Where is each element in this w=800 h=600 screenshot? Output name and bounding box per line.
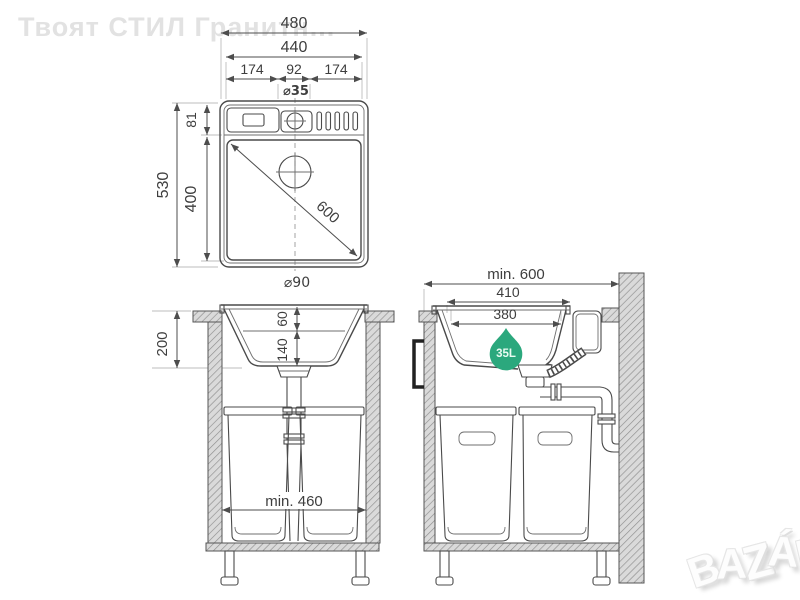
cabinet-wall-left	[208, 322, 222, 543]
front-dimensions: 200 60 140 min. 460	[154, 307, 366, 510]
side-view: 35L min. 600 410 380	[414, 266, 644, 585]
leg	[597, 551, 606, 577]
trap-cup	[526, 377, 544, 387]
dim-440: 440	[281, 39, 308, 56]
bin-handle	[459, 432, 495, 445]
waste-bin-front	[436, 407, 516, 541]
cabinet-base	[206, 543, 379, 585]
badge-capacity-label: 35L	[496, 348, 516, 360]
dim-81: 81	[183, 112, 199, 128]
dim-174-left: 174	[240, 61, 264, 77]
accessory-hole	[243, 114, 264, 126]
bin-handle	[538, 432, 572, 445]
diagonal-label: 600	[307, 191, 350, 232]
cabinet-wall-right	[366, 322, 380, 543]
tap-hole-icon	[281, 110, 312, 132]
dim-drain: ⌀90	[284, 275, 310, 291]
drain-flange	[277, 366, 311, 377]
foot	[436, 577, 453, 585]
sink-dimension-drawing: Твоят СТИЛ Гранитн...	[0, 0, 800, 600]
dim-92: 92	[286, 61, 302, 77]
drain-icon	[276, 153, 314, 191]
drainer-slots	[317, 112, 358, 130]
door-handle	[414, 341, 424, 387]
side-dimensions: min. 600 410 380	[424, 266, 619, 324]
waste-bin-back	[519, 407, 595, 541]
dim-200: 200	[154, 331, 171, 356]
dim-min-600: min. 600	[487, 266, 545, 283]
diagonal-dimension-line	[231, 144, 357, 256]
dim-174-right: 174	[324, 61, 348, 77]
countertop-back	[602, 308, 619, 322]
dim-min-460: min. 460	[265, 493, 323, 510]
waste-bin-right	[296, 407, 364, 541]
overflow-unit	[548, 311, 601, 374]
leg	[356, 551, 365, 577]
wall	[619, 273, 644, 583]
drain-piping	[540, 384, 619, 452]
dim-tap-hole: ⌀35	[283, 84, 309, 99]
capacity-badge: 35L	[490, 328, 523, 370]
dim-400: 400	[183, 186, 200, 213]
sink-section	[220, 305, 368, 377]
countertop-front	[419, 311, 437, 322]
foot	[221, 577, 238, 585]
foot	[352, 577, 369, 585]
sink-plan-outline	[220, 101, 368, 267]
dim-140: 140	[274, 338, 290, 362]
technical-drawing: 600 480 440 174 92 174 ⌀35 530 81	[0, 0, 800, 600]
front-view: 200 60 140 min. 460	[152, 305, 394, 585]
leg	[225, 551, 234, 577]
waste-bin-left	[224, 407, 292, 541]
dim-380: 380	[493, 306, 517, 322]
dim-530: 530	[155, 172, 172, 199]
rear-deck	[227, 108, 279, 132]
top-dimensions: 480 440 174 92 174 ⌀35 530 81 400 ⌀90	[155, 15, 367, 291]
cabinet-door	[424, 322, 435, 543]
leg	[440, 551, 449, 577]
foot	[593, 577, 610, 585]
cabinet-base	[424, 543, 619, 585]
top-view: 600 480 440 174 92 174 ⌀35 530 81	[155, 15, 368, 291]
countertop-right	[365, 311, 394, 322]
dim-60: 60	[274, 311, 290, 327]
dim-480: 480	[281, 15, 308, 32]
dim-410: 410	[496, 284, 520, 300]
countertop-left	[193, 311, 222, 322]
